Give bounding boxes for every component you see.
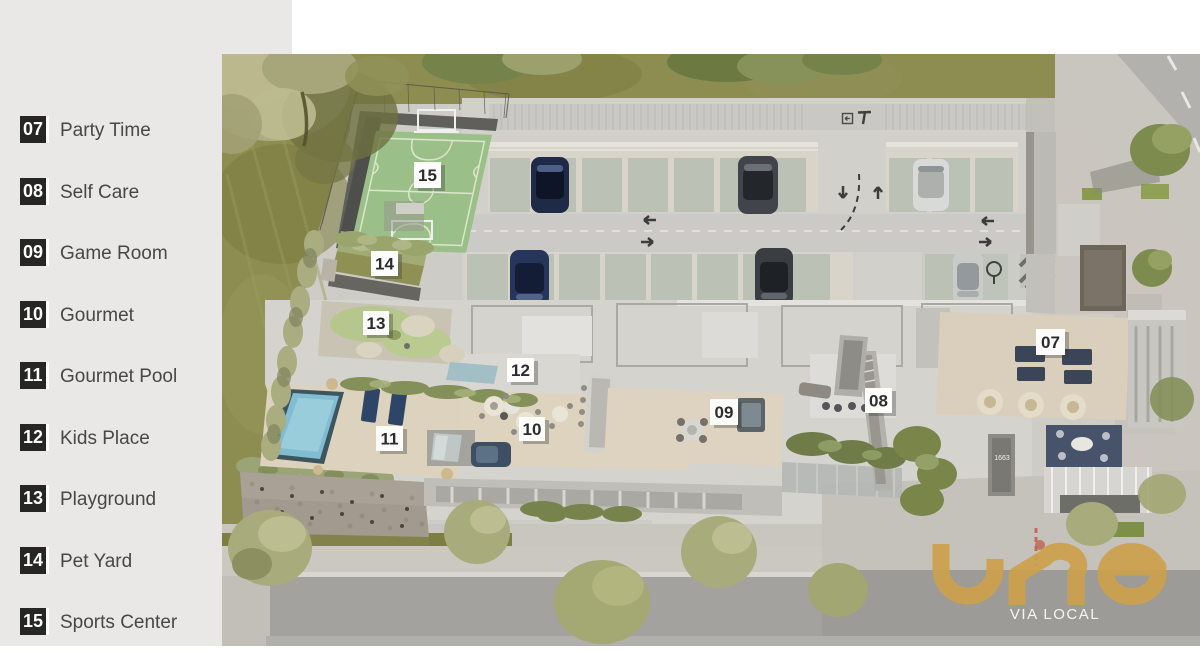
svg-text:07: 07 [1041,333,1060,352]
svg-text:14: 14 [375,255,394,274]
svg-text:10: 10 [523,420,542,439]
svg-text:1663: 1663 [994,455,1010,462]
svg-text:09: 09 [715,403,734,422]
svg-text:12: 12 [511,361,530,380]
svg-text:15: 15 [418,166,437,185]
svg-text:VIA LOCAL: VIA LOCAL [1010,606,1100,623]
svg-text:08: 08 [869,392,888,411]
svg-text:13: 13 [367,314,386,333]
svg-text:11: 11 [381,430,399,449]
